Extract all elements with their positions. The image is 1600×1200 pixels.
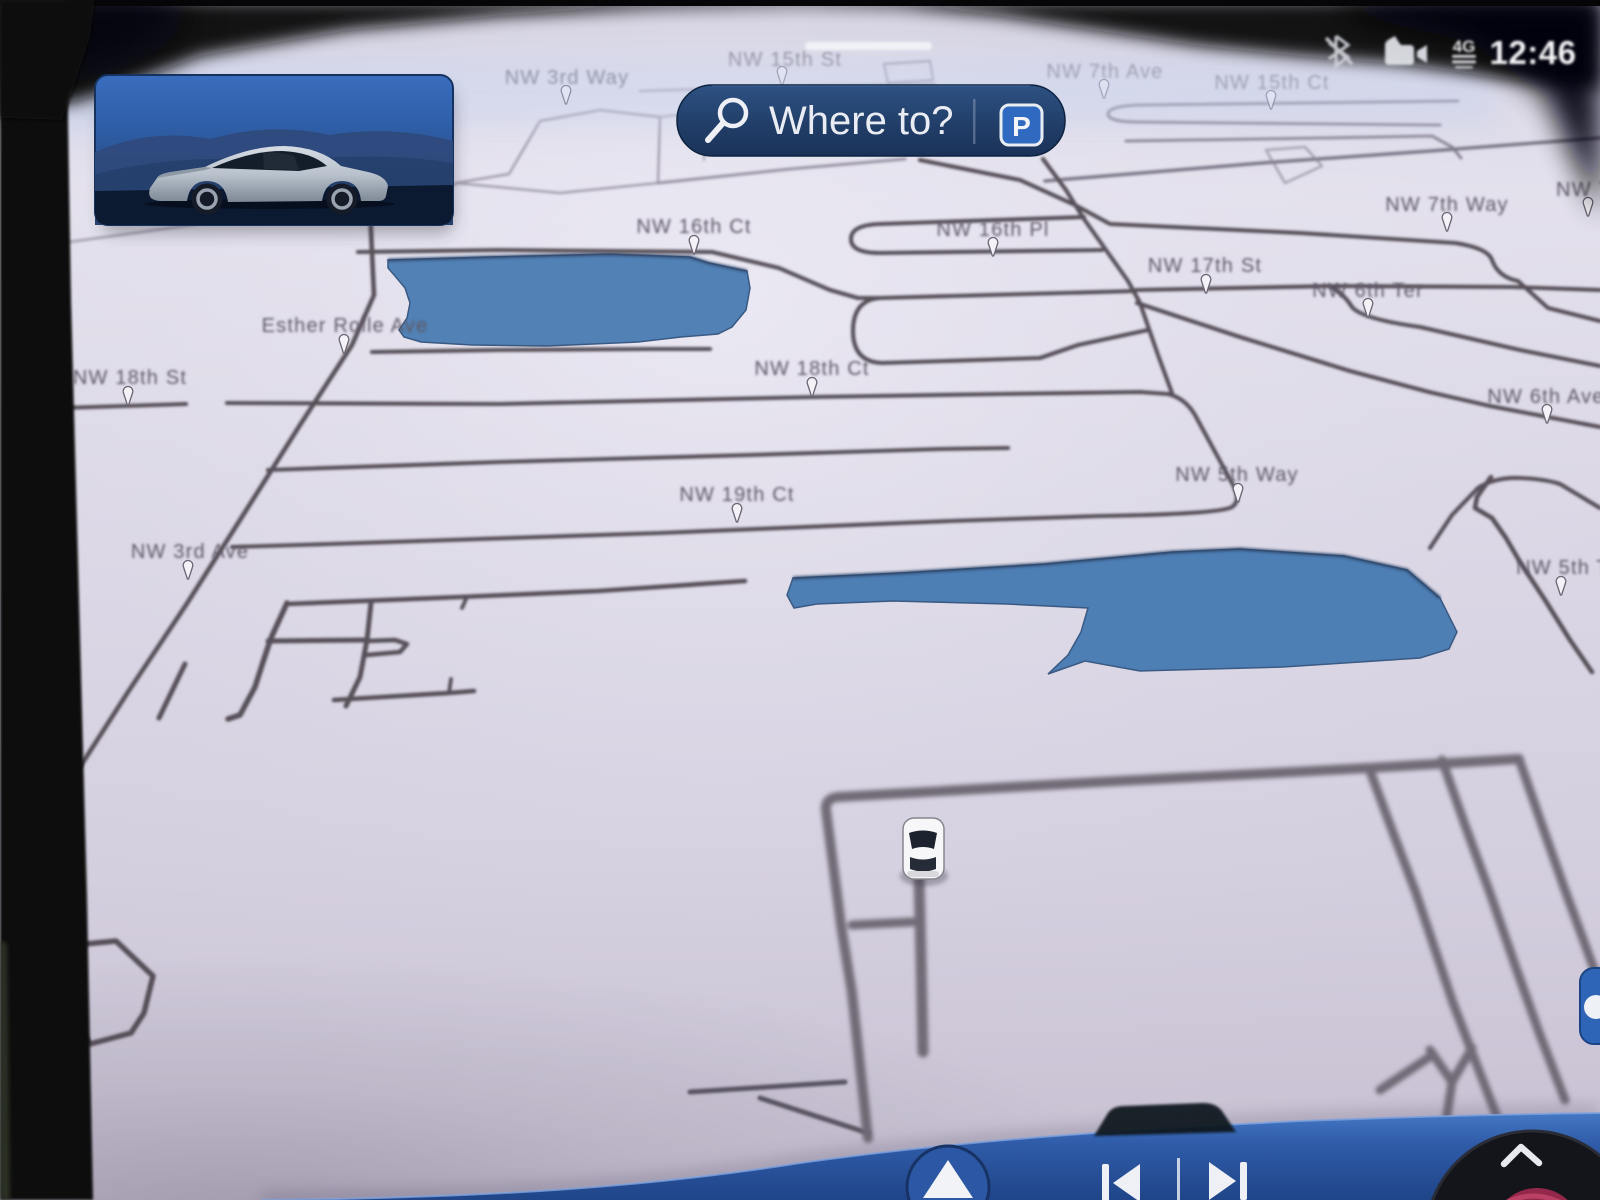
svg-text:NW 17th St: NW 17th St (1148, 255, 1262, 277)
svg-text:NW 16th Ct: NW 16th Ct (636, 216, 751, 238)
svg-text:NW 5th T: NW 5th T (1516, 557, 1600, 579)
svg-text:P: P (1012, 111, 1031, 142)
svg-text:12:46: 12:46 (1490, 34, 1577, 71)
svg-text:NW 5th Way: NW 5th Way (1175, 464, 1299, 486)
svg-text:4G: 4G (1453, 37, 1476, 56)
svg-text:NW 18th Ct: NW 18th Ct (754, 358, 869, 380)
svg-text:NW 19th Ct: NW 19th Ct (679, 484, 794, 506)
svg-text:Where to?: Where to? (769, 99, 954, 143)
svg-text:NW 3rd Ave: NW 3rd Ave (131, 541, 249, 563)
svg-text:NW 18th St: NW 18th St (73, 367, 187, 389)
svg-text:NW 6th Ave: NW 6th Ave (1487, 386, 1600, 408)
svg-text:Esther Rolle Ave: Esther Rolle Ave (262, 315, 429, 337)
